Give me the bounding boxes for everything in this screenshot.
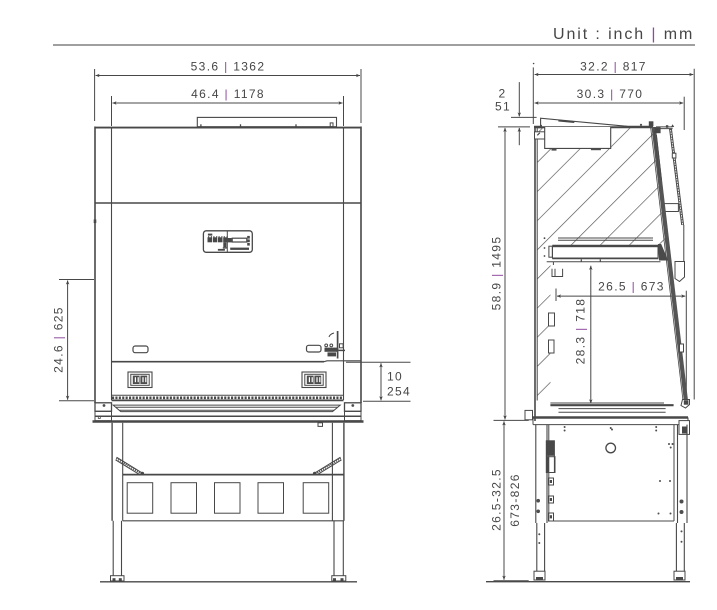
svg-text:24.6 | 625: 24.6 | 625 [51, 306, 65, 373]
svg-text:32.2 | 817: 32.2 | 817 [580, 60, 647, 74]
svg-text:53.6 | 1362: 53.6 | 1362 [191, 60, 266, 74]
svg-text:30.3 | 770: 30.3 | 770 [577, 87, 644, 101]
svg-text:673-826: 673-826 [508, 473, 522, 527]
svg-text:58.9 | 1495: 58.9 | 1495 [490, 236, 504, 311]
svg-text:26.5 | 673: 26.5 | 673 [598, 280, 665, 294]
svg-text:28.3 | 718: 28.3 | 718 [574, 298, 588, 365]
svg-text:26.5-32.5: 26.5-32.5 [490, 468, 504, 531]
svg-text:10: 10 [387, 370, 403, 384]
svg-text:2: 2 [498, 87, 506, 101]
svg-text:51: 51 [495, 100, 511, 114]
svg-text:46.4 | 1178: 46.4 | 1178 [191, 87, 265, 101]
svg-text:Unit : inch | mm: Unit : inch | mm [553, 26, 694, 43]
svg-text:254: 254 [387, 385, 411, 399]
